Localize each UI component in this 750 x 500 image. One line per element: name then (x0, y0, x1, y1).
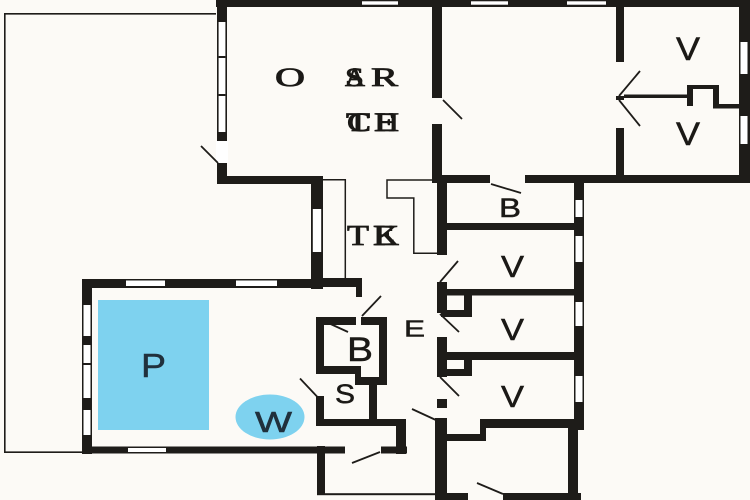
svg-text:P: P (141, 347, 166, 384)
svg-text:S: S (335, 379, 355, 409)
svg-text:V: V (501, 312, 524, 347)
svg-text:B: B (347, 331, 373, 369)
svg-text:V: V (676, 116, 701, 152)
svg-text:H: H (375, 108, 399, 137)
svg-text:S: S (345, 63, 364, 92)
svg-text:W: W (255, 407, 293, 439)
svg-text:V: V (501, 249, 524, 284)
svg-text:T: T (347, 221, 369, 252)
svg-text:O: O (275, 63, 305, 92)
svg-text:B: B (499, 193, 521, 223)
svg-text:E: E (404, 316, 425, 342)
svg-text:V: V (501, 379, 524, 414)
svg-text:K: K (374, 221, 399, 252)
svg-text:V: V (676, 31, 701, 67)
svg-text:T: T (346, 108, 370, 137)
svg-text:R: R (371, 63, 399, 92)
